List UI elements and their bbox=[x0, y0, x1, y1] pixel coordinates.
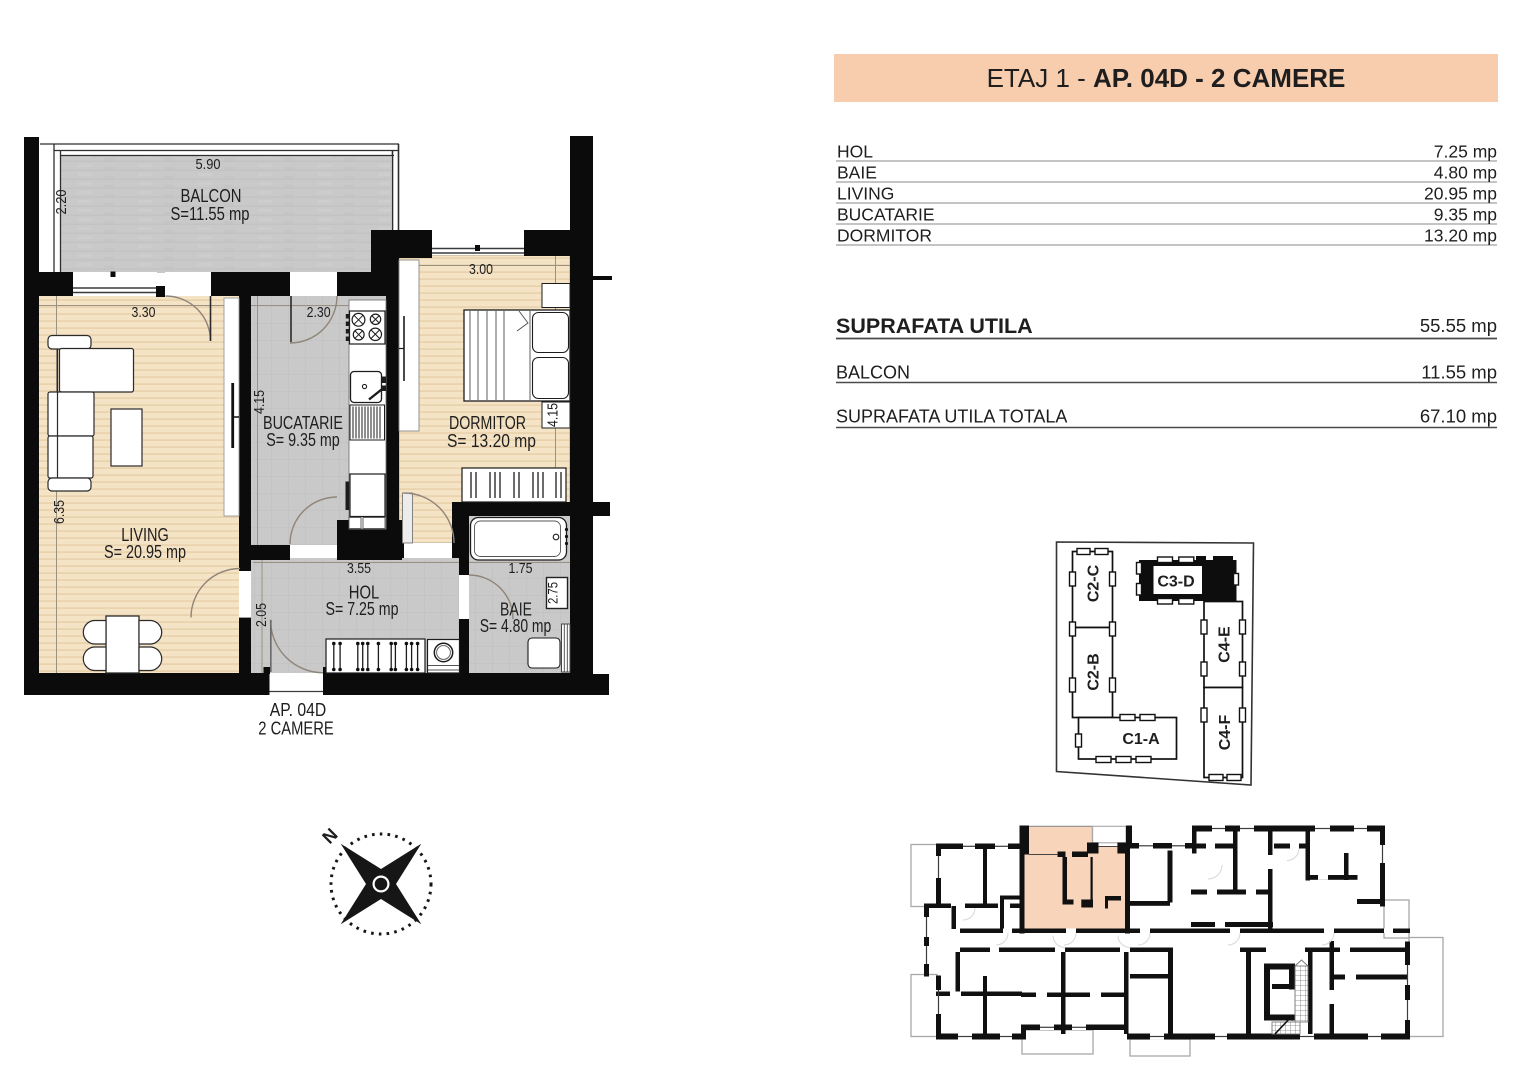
svg-text:2 CAMERE: 2 CAMERE bbox=[258, 719, 334, 739]
svg-text:2.05: 2.05 bbox=[253, 603, 270, 627]
svg-text:55.55 mp: 55.55 mp bbox=[1420, 315, 1497, 336]
svg-text:S= 9.35 mp: S= 9.35 mp bbox=[266, 430, 340, 450]
svg-text:DORMITOR: DORMITOR bbox=[449, 413, 526, 433]
svg-text:C2-B: C2-B bbox=[1086, 653, 1103, 690]
svg-text:AP. 04D: AP. 04D bbox=[270, 700, 327, 720]
svg-text:LIVING: LIVING bbox=[837, 184, 894, 204]
svg-text:BUCATARIE: BUCATARIE bbox=[837, 205, 935, 225]
svg-text:3.55: 3.55 bbox=[347, 560, 371, 577]
svg-text:SUPRAFATA UTILA: SUPRAFATA UTILA bbox=[836, 314, 1033, 338]
svg-text:7.25 mp: 7.25 mp bbox=[1434, 142, 1497, 162]
svg-text:DORMITOR: DORMITOR bbox=[837, 226, 932, 246]
svg-text:3.30: 3.30 bbox=[132, 304, 156, 321]
svg-text:20.95 mp: 20.95 mp bbox=[1424, 184, 1497, 204]
svg-text:4.15: 4.15 bbox=[545, 403, 562, 427]
svg-text:1.75: 1.75 bbox=[509, 560, 533, 577]
svg-text:S= 13.20 mp: S= 13.20 mp bbox=[447, 431, 536, 451]
svg-text:C4-E: C4-E bbox=[1217, 626, 1234, 663]
svg-text:4.80 mp: 4.80 mp bbox=[1434, 163, 1497, 183]
svg-text:67.10 mp: 67.10 mp bbox=[1420, 406, 1497, 427]
svg-text:3.00: 3.00 bbox=[469, 261, 493, 278]
svg-text:C2-C: C2-C bbox=[1086, 564, 1103, 602]
svg-text:ETAJ 1 - AP. 04D - 2 CAMERE: ETAJ 1 - AP. 04D - 2 CAMERE bbox=[987, 63, 1346, 93]
svg-text:9.35 mp: 9.35 mp bbox=[1434, 205, 1497, 225]
svg-text:6.35: 6.35 bbox=[51, 500, 68, 524]
svg-text:C1-A: C1-A bbox=[1122, 731, 1160, 748]
svg-text:S= 7.25 mp: S= 7.25 mp bbox=[326, 599, 399, 619]
svg-text:C4-F: C4-F bbox=[1217, 715, 1234, 751]
svg-text:13.20 mp: 13.20 mp bbox=[1424, 226, 1497, 246]
svg-text:HOL: HOL bbox=[837, 142, 873, 162]
svg-text:11.55 mp: 11.55 mp bbox=[1421, 362, 1497, 383]
svg-text:SUPRAFATA UTILA TOTALA: SUPRAFATA UTILA TOTALA bbox=[836, 407, 1067, 427]
svg-text:S= 4.80 mp: S= 4.80 mp bbox=[480, 616, 552, 636]
svg-text:C3-D: C3-D bbox=[1157, 574, 1194, 591]
svg-text:S= 20.95 mp: S= 20.95 mp bbox=[104, 542, 186, 562]
svg-text:BAIE: BAIE bbox=[837, 163, 877, 183]
svg-text:S=11.55 mp: S=11.55 mp bbox=[171, 204, 250, 224]
svg-text:4.15: 4.15 bbox=[251, 390, 268, 414]
svg-text:2.20: 2.20 bbox=[53, 190, 70, 215]
svg-text:BALCON: BALCON bbox=[181, 186, 242, 206]
svg-text:2.30: 2.30 bbox=[307, 304, 331, 321]
svg-text:2.75: 2.75 bbox=[545, 582, 560, 604]
svg-text:BALCON: BALCON bbox=[836, 363, 910, 383]
svg-text:5.90: 5.90 bbox=[196, 156, 221, 173]
